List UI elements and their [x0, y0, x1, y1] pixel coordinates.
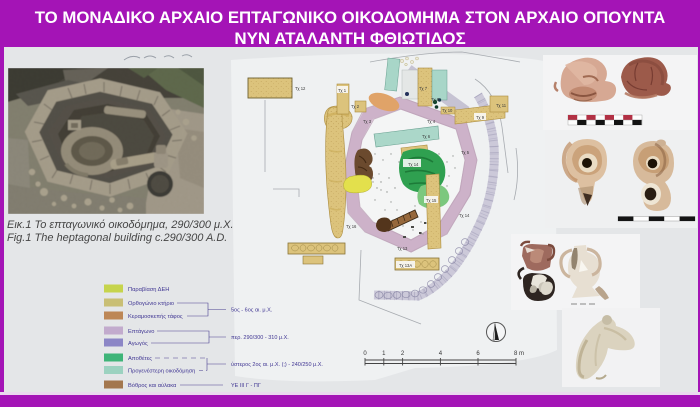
- svg-text:Τχ 13: Τχ 13: [397, 246, 408, 251]
- svg-text:Τχ 3: Τχ 3: [363, 119, 372, 124]
- svg-text:Κεραμοσκεπής τάφος: Κεραμοσκεπής τάφος: [128, 313, 183, 320]
- svg-text:Τχ 7: Τχ 7: [419, 86, 428, 91]
- svg-text:Βόθρος και αύλακα: Βόθρος και αύλακα: [128, 382, 177, 389]
- svg-text:Τχ 14: Τχ 14: [459, 213, 470, 218]
- svg-text:Τχ 2: Τχ 2: [351, 104, 360, 109]
- svg-text:περ. 290/300 - 310 μ.Χ.: περ. 290/300 - 310 μ.Χ.: [231, 335, 289, 341]
- svg-text:Τχ 9: Τχ 9: [476, 115, 485, 120]
- svg-text:Προγενέστερη οικοδόμηση: Προγενέστερη οικοδόμηση: [128, 368, 195, 375]
- svg-text:Τχ 12: Τχ 12: [295, 86, 306, 91]
- svg-text:Τχ 5: Τχ 5: [461, 150, 470, 155]
- svg-text:Τχ 16: Τχ 16: [346, 224, 357, 229]
- svg-text:Παραβίαση ΔΕΗ: Παραβίαση ΔΕΗ: [128, 287, 169, 293]
- svg-text:Τχ 6: Τχ 6: [422, 134, 431, 139]
- svg-text:Ορθογώνιο κτήριο: Ορθογώνιο κτήριο: [128, 300, 174, 307]
- svg-text:ύστερος 2ος αι. μ.Χ. (;) - 240: ύστερος 2ος αι. μ.Χ. (;) - 240/250 μ.Χ.: [231, 361, 323, 368]
- svg-text:Αγωγός: Αγωγός: [128, 340, 148, 347]
- svg-text:Τχ 14: Τχ 14: [408, 162, 419, 167]
- svg-text:Επτάγωνο: Επτάγωνο: [128, 328, 154, 335]
- svg-text:Τχ 8: Τχ 8: [431, 97, 440, 102]
- svg-text:ΥΕ ΙΙΙ Γ - ΠΓ: ΥΕ ΙΙΙ Γ - ΠΓ: [231, 383, 261, 389]
- svg-text:Τχ 1: Τχ 1: [338, 88, 347, 93]
- svg-text:Αποθέτες: Αποθέτες: [128, 355, 152, 362]
- svg-text:Τχ 10: Τχ 10: [442, 108, 453, 113]
- svg-text:5ος - 6ος αι. μ.Χ.: 5ος - 6ος αι. μ.Χ.: [231, 308, 273, 314]
- svg-text:Τχ 11: Τχ 11: [496, 103, 507, 108]
- svg-text:Τχ 13Α: Τχ 13Α: [399, 263, 412, 268]
- svg-text:Τχ 4: Τχ 4: [427, 119, 436, 124]
- svg-text:8 m: 8 m: [514, 351, 524, 357]
- svg-text:Τχ 15: Τχ 15: [426, 198, 437, 203]
